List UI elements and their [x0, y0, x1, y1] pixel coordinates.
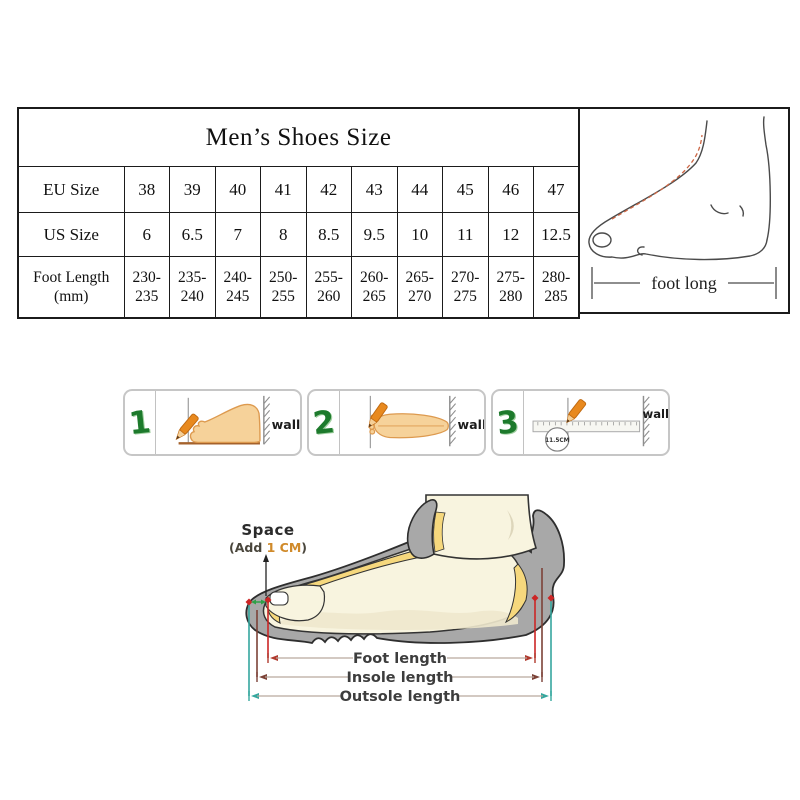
eu-size-cell: 44: [397, 167, 443, 213]
size-table: Men’s Shoes Size EU Size 38 39 40 41 42 …: [17, 107, 580, 319]
us-size-cell: 9.5: [352, 213, 398, 257]
step-1-drawing: wall: [156, 392, 300, 454]
us-size-cell: 12: [488, 213, 534, 257]
step-2-illustration: wall: [340, 391, 484, 454]
step-3-number: 3: [495, 403, 520, 441]
ankle-mark-left: [711, 205, 728, 214]
space-note-value: 1 CM: [267, 540, 302, 555]
ankle-mark-right: [740, 206, 743, 216]
space-label: Space: [241, 521, 294, 539]
foot-length-measure: Foot length: [268, 651, 535, 667]
wall-label: wall: [272, 416, 300, 431]
step-3-drawing: 11.5CM wall: [524, 392, 668, 454]
step-2-number-badge: 2: [309, 391, 340, 454]
measure-step-3: 3: [491, 389, 670, 456]
shoe-size-infographic: Men’s Shoes Size EU Size 38 39 40 41 42 …: [0, 0, 800, 800]
us-size-cell: 7: [215, 213, 261, 257]
eu-size-cell: 42: [306, 167, 352, 213]
foot-long-caption: foot long: [651, 273, 717, 293]
step-1-number: 1: [127, 403, 152, 441]
foot-length-cell: 270-275: [443, 257, 489, 319]
insole-length-measure: Insole length: [257, 670, 542, 686]
toenail: [270, 592, 288, 605]
measure-step-2: 2: [307, 389, 486, 456]
us-size-cell: 6.5: [170, 213, 216, 257]
table-title: Men’s Shoes Size: [18, 108, 579, 167]
table-title-row: Men’s Shoes Size: [18, 108, 579, 167]
step-3-illustration: 11.5CM wall: [524, 391, 668, 454]
step-2-drawing: wall: [340, 392, 484, 454]
us-size-cell: 6: [124, 213, 170, 257]
foot-side-view: [190, 404, 260, 442]
foot-length-cell: 240-245: [215, 257, 261, 319]
ruler: [533, 421, 640, 432]
wall-label: wall: [643, 407, 669, 421]
insole-length-measure-label: Insole length: [347, 670, 454, 686]
foot-length-label: Foot Length (mm): [18, 257, 124, 319]
measure-callout-value: 11.5CM: [545, 437, 570, 443]
us-size-row: US Size 6 6.5 7 8 8.5 9.5 10 11 12 12.5: [18, 213, 579, 257]
foot-length-label-text: Foot Length: [19, 268, 124, 287]
eu-size-cell: 47: [534, 167, 580, 213]
us-size-cell: 10: [397, 213, 443, 257]
us-size-cell: 8: [261, 213, 307, 257]
eu-size-cell: 43: [352, 167, 398, 213]
heel-outline: [764, 117, 771, 240]
eu-size-cell: 45: [443, 167, 489, 213]
wall-label: wall: [458, 416, 484, 431]
step-1-illustration: wall: [156, 391, 300, 454]
space-note-prefix: (Add: [229, 540, 267, 555]
eu-size-cell: 46: [488, 167, 534, 213]
eu-size-row: EU Size 38 39 40 41 42 43 44 45 46 47: [18, 167, 579, 213]
step-2-number: 2: [311, 403, 336, 441]
toenail-sketch: [593, 233, 611, 247]
us-size-cell: 8.5: [306, 213, 352, 257]
outsole-length-measure: Outsole length: [249, 689, 551, 705]
space-note-suffix: ): [301, 540, 307, 555]
foot-length-unit: (mm): [19, 287, 124, 306]
wall-hatch: [450, 395, 456, 445]
foot-side-sketch: foot long: [580, 109, 788, 312]
eu-size-cell: 39: [170, 167, 216, 213]
foot-length-cell: 230-235: [124, 257, 170, 319]
us-size-label: US Size: [18, 213, 124, 257]
foot-length-sketch-panel: foot long: [578, 107, 790, 314]
foot-length-cell: 275-280: [488, 257, 534, 319]
foot-length-cell: 265-270: [397, 257, 443, 319]
foot-length-cell: 280-285: [534, 257, 580, 319]
us-size-cell: 12.5: [534, 213, 580, 257]
space-pointer-head: [263, 554, 269, 562]
shoe-length-diagram: Space (Add 1 CM) Foot length Insole leng…: [220, 472, 580, 707]
eu-size-cell: 41: [261, 167, 307, 213]
space-note: (Add 1 CM): [229, 540, 307, 555]
foot-outline: [589, 121, 767, 260]
us-size-cell: 11: [443, 213, 489, 257]
foot-length-measure-label: Foot length: [353, 651, 447, 667]
foot-top-view: [369, 413, 448, 437]
step-1-number-badge: 1: [125, 391, 156, 454]
instep-dashed-line: [612, 135, 702, 219]
eu-size-cell: 40: [215, 167, 261, 213]
eu-size-label: EU Size: [18, 167, 124, 213]
measure-step-1: 1: [123, 389, 302, 456]
eu-size-cell: 38: [124, 167, 170, 213]
foot-length-cell: 235-240: [170, 257, 216, 319]
wall-hatch: [264, 395, 270, 443]
foot-length-cell: 260-265: [352, 257, 398, 319]
foot-length-cell: 250-255: [261, 257, 307, 319]
foot-length-row: Foot Length (mm) 230-235 235-240 240-245…: [18, 257, 579, 319]
foot-length-cell: 255-260: [306, 257, 352, 319]
collar-front-tab: [408, 500, 437, 558]
outsole-length-measure-label: Outsole length: [340, 689, 461, 705]
step-3-number-badge: 3: [493, 391, 524, 454]
measure-steps-strip: 1: [123, 389, 670, 456]
